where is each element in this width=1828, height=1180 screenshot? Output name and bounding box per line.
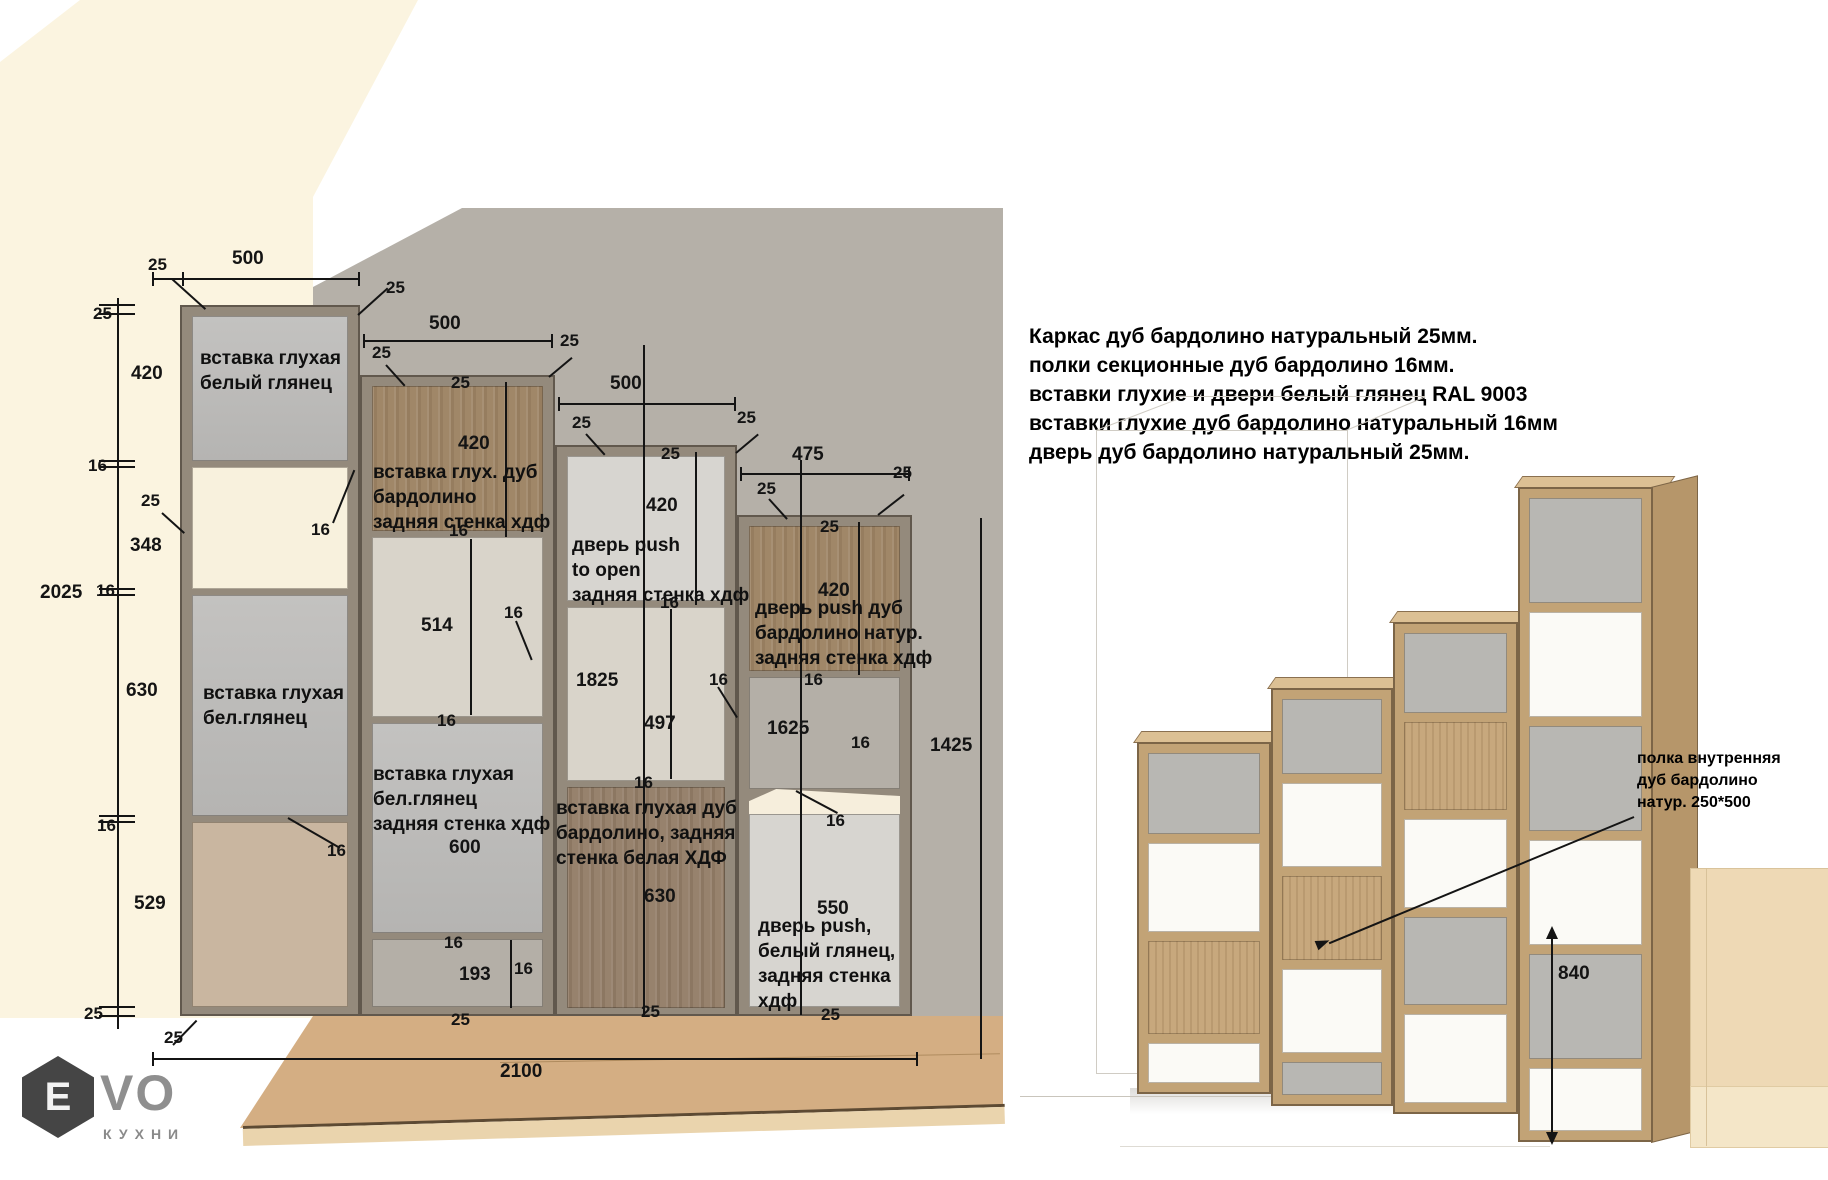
dim-label: 500 bbox=[429, 314, 461, 334]
dim-label: 25 bbox=[641, 1003, 660, 1021]
render-cell-panel bbox=[1404, 917, 1507, 1006]
render-column-3 bbox=[1393, 622, 1518, 1114]
open-niche bbox=[567, 607, 725, 781]
dim-line-right-height bbox=[980, 518, 982, 1059]
dim-label: 25 bbox=[372, 344, 391, 362]
render-cell-open bbox=[1148, 1043, 1260, 1083]
render-cell-open bbox=[1404, 819, 1507, 908]
dim-label: 25 bbox=[451, 374, 470, 392]
dim-label: 16 bbox=[327, 842, 346, 860]
render-cell-open bbox=[1282, 969, 1382, 1053]
render-column-4 bbox=[1518, 487, 1653, 1142]
side-cabinet-edge bbox=[1706, 868, 1707, 1146]
dim-label: 1625 bbox=[767, 719, 809, 739]
dim-label: 16 bbox=[444, 934, 463, 952]
dim-label: 25 bbox=[148, 256, 167, 274]
brand-logo-mark: Е bbox=[22, 1056, 94, 1138]
render-cell-open bbox=[1529, 1068, 1642, 1131]
dim-tick bbox=[99, 1015, 135, 1017]
open-niche bbox=[192, 822, 348, 1007]
dim-label: 25 bbox=[661, 445, 680, 463]
dim-label: 25 bbox=[451, 1011, 470, 1029]
dim-label: 475 bbox=[792, 445, 824, 465]
dim-label: 2025 bbox=[40, 583, 82, 603]
dim-label: 25 bbox=[560, 332, 579, 350]
render-cell-panel bbox=[1282, 699, 1382, 774]
spec-line-3: вставки глухие и двери белый глянец RAL … bbox=[1029, 380, 1558, 409]
render-column-2 bbox=[1271, 688, 1393, 1106]
dim-label: 500 bbox=[232, 249, 264, 269]
dim-line-col4-width bbox=[740, 473, 910, 475]
render-cell-panel bbox=[1529, 498, 1642, 603]
dim-label: 497 bbox=[644, 714, 676, 734]
dim-label: 500 bbox=[610, 374, 642, 394]
dim-tick bbox=[99, 1006, 135, 1008]
dim-label: 1425 bbox=[930, 736, 972, 756]
side-cabinet-lower bbox=[1690, 1086, 1828, 1148]
dim-line-514 bbox=[470, 539, 472, 715]
dim-label: 514 bbox=[421, 616, 453, 636]
render-cell-open bbox=[1148, 843, 1260, 932]
dim-label: 16 bbox=[851, 734, 870, 752]
render-cell-panel bbox=[1404, 633, 1507, 713]
dim-label: 16 bbox=[88, 457, 107, 475]
dim-label: 25 bbox=[572, 414, 591, 432]
dim-label: 420 bbox=[131, 364, 163, 384]
panel-label-col2-mid: вставка глухая бел.глянец задняя стенка … bbox=[373, 762, 550, 837]
dim-label: 193 bbox=[459, 965, 491, 985]
dim-label: 348 bbox=[130, 536, 162, 556]
dim-arrow-up bbox=[1546, 926, 1558, 939]
render-cell-wood bbox=[1282, 876, 1382, 960]
dim-label: 420 bbox=[646, 496, 678, 516]
panel-label-col1-mid: вставка глухая бел.глянец bbox=[203, 681, 344, 731]
spec-line-2: полки секционные дуб бардолино 16мм. bbox=[1029, 351, 1558, 380]
brand-logo-name: VO bbox=[100, 1064, 176, 1122]
dim-label: 25 bbox=[820, 518, 839, 536]
niche-bottom-surface bbox=[749, 789, 900, 816]
dim-line-840 bbox=[1551, 935, 1553, 1135]
render-cell-open bbox=[1404, 1014, 1507, 1103]
render-floor-line bbox=[1120, 1146, 1550, 1147]
drawing-page: 25 500 25 420 25 500 25 25 25 420 16 25 … bbox=[0, 0, 1828, 1180]
elevation-column-1 bbox=[180, 305, 360, 1016]
render-cell-open bbox=[1529, 612, 1642, 717]
panel-label-col4-door: дверь push дуб бардолино натур. задняя с… bbox=[755, 596, 932, 671]
dim-label-840: 840 bbox=[1558, 964, 1590, 984]
dim-line-497 bbox=[670, 609, 672, 779]
dim-line-col2-width bbox=[363, 340, 553, 342]
dim-label: 16 bbox=[514, 960, 533, 978]
dim-label: 16 bbox=[311, 521, 330, 539]
render-cell-wood bbox=[1404, 722, 1507, 811]
spec-line-1: Каркас дуб бардолино натуральный 25мм. bbox=[1029, 322, 1558, 351]
render-cell-wood bbox=[1148, 941, 1260, 1034]
render-cell-panel bbox=[1148, 753, 1260, 834]
side-cabinet-upper bbox=[1690, 868, 1828, 1088]
dim-label: 16 bbox=[826, 812, 845, 830]
dim-label: 25 bbox=[164, 1029, 183, 1047]
dim-label: 25 bbox=[893, 464, 912, 482]
ghost-outline-edge bbox=[1175, 396, 1425, 397]
dim-line-1825 bbox=[643, 345, 645, 1015]
render-cell-panel bbox=[1282, 1062, 1382, 1095]
panel-label-col2-top: вставка глух. дуб бардолино задняя стенк… bbox=[373, 460, 550, 535]
dim-line-total-width bbox=[152, 1058, 918, 1060]
dim-label: 630 bbox=[644, 887, 676, 907]
panel-label-col4-bottom: дверь push, белый глянец, задняя стенка … bbox=[758, 914, 895, 1014]
dim-label: 25 bbox=[93, 305, 112, 323]
render-column-1 bbox=[1137, 742, 1271, 1094]
render-cell-panel bbox=[1529, 726, 1642, 831]
dim-label: 25 bbox=[737, 409, 756, 427]
dim-label: 16 bbox=[634, 774, 653, 792]
dim-label: 25 bbox=[757, 480, 776, 498]
dim-arrow-down bbox=[1546, 1132, 1558, 1145]
dim-label: 600 bbox=[449, 838, 481, 858]
dim-label: 420 bbox=[458, 434, 490, 454]
logo-letter: Е bbox=[45, 1075, 72, 1120]
dim-line-total-height bbox=[117, 298, 119, 1029]
dim-label: 529 bbox=[134, 894, 166, 914]
dim-label: 16 bbox=[437, 712, 456, 730]
dim-label: 16 bbox=[804, 671, 823, 689]
dim-label: 16 bbox=[504, 604, 523, 622]
dim-label-total-width: 2100 bbox=[500, 1062, 542, 1082]
dim-label: 16 bbox=[709, 671, 728, 689]
dim-label: 25 bbox=[141, 492, 160, 510]
panel-label-col3-door: дверь push to open задняя стенка хдф bbox=[572, 533, 749, 608]
render-cell-open bbox=[1282, 783, 1382, 867]
dim-tick bbox=[182, 272, 184, 286]
dim-label: 16 bbox=[96, 582, 115, 600]
dim-label: 25 bbox=[386, 279, 405, 297]
dim-label: 630 bbox=[126, 681, 158, 701]
brand-logo-subtitle: КУХНИ bbox=[103, 1126, 185, 1142]
dim-line-col3-width bbox=[558, 403, 736, 405]
dim-label: 16 bbox=[97, 817, 116, 835]
panel-label-col1-top: вставка глухая белый глянец bbox=[200, 346, 341, 396]
render-annotation: полка внутренняя дуб бардолино натур. 25… bbox=[1637, 748, 1781, 814]
dim-line-193 bbox=[510, 940, 512, 1008]
dim-label: 1825 bbox=[576, 671, 618, 691]
dim-label: 25 bbox=[84, 1005, 103, 1023]
panel-label-col3-bottom: вставка глухая дуб бардолино, задняя сте… bbox=[556, 796, 737, 871]
